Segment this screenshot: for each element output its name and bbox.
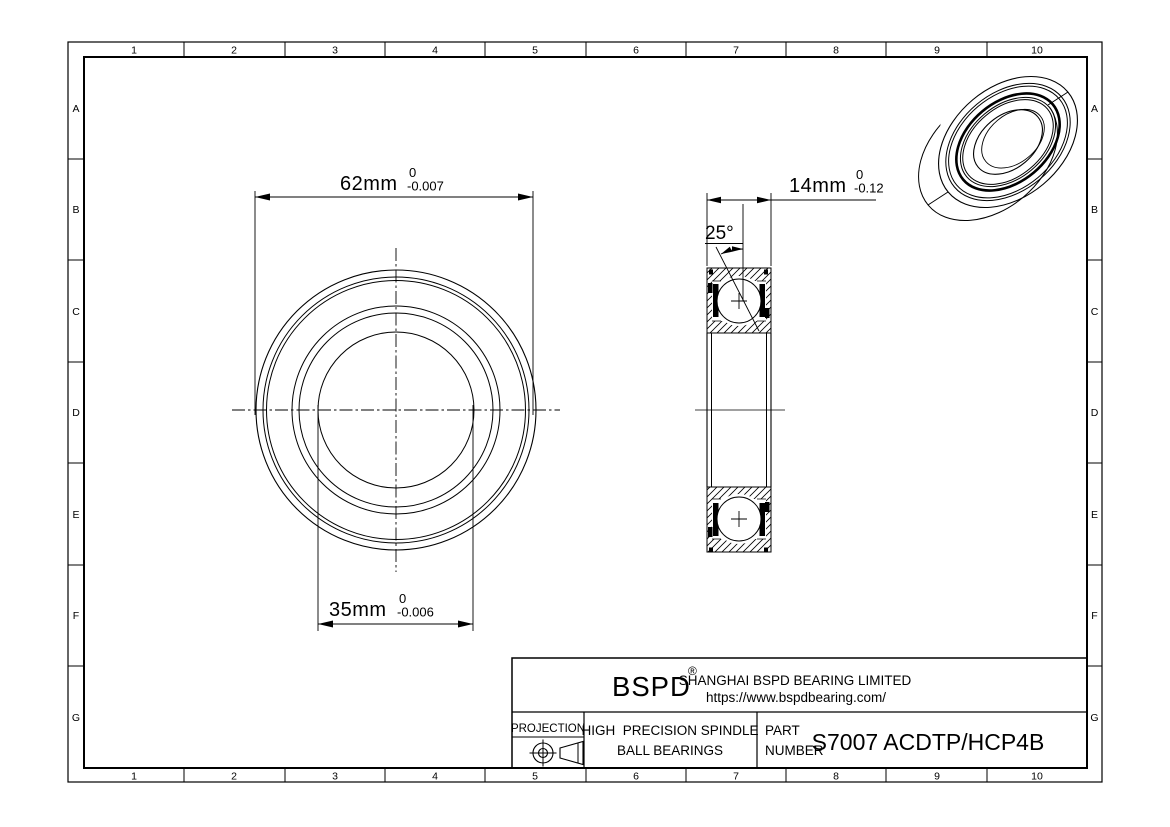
product-line1: HIGH PRECISION SPINDLE — [581, 723, 758, 738]
grid-row-label: A — [72, 103, 79, 115]
bearing-isometric-view — [893, 50, 1103, 248]
bore-dim-tol-lower: -0.006 — [397, 605, 434, 620]
grid-row-labels-right: A B C D E F G — [1090, 103, 1098, 724]
grid-col-label: 10 — [1031, 45, 1043, 57]
section-bottom-block — [707, 487, 771, 553]
company-name: SHANGHAI BSPD BEARING LIMITED — [679, 673, 912, 688]
bearing-front-view: 62mm 0 -0.007 35mm 0 -0.006 — [232, 165, 560, 631]
grid-row-label: C — [72, 306, 80, 318]
width-dim-tol-lower: -0.12 — [854, 181, 884, 196]
drawing-sheet: 1 2 3 4 5 6 7 8 9 10 1 2 3 4 5 6 7 8 9 1… — [0, 0, 1170, 827]
grid-row-label: D — [1091, 407, 1099, 419]
grid-row-label: D — [72, 407, 80, 419]
grid-column-labels-top: 1 2 3 4 5 6 7 8 9 10 — [131, 45, 1043, 57]
iso-seal-ring — [937, 74, 1078, 210]
grid-col-label: 7 — [733, 45, 739, 57]
company-website: https://www.bspdbearing.com/ — [706, 690, 886, 705]
width-dim-value: 14mm — [789, 175, 847, 197]
grid-col-label: 5 — [532, 45, 538, 57]
grid-column-labels-bottom: 1 2 3 4 5 6 7 8 9 10 — [131, 771, 1043, 783]
grid-col-label: 3 — [332, 771, 338, 783]
title-block: BSPD ® SHANGHAI BSPD BEARING LIMITED htt… — [511, 658, 1087, 768]
grid-col-label: 1 — [131, 45, 137, 57]
grid-col-label: 2 — [231, 771, 237, 783]
section-top-block — [707, 268, 771, 333]
outer-dim-tol-lower: -0.007 — [407, 179, 444, 194]
grid-col-label: 6 — [633, 771, 639, 783]
part-number-value: S7007 ACDTP/HCP4B — [812, 729, 1045, 755]
grid-row-label: E — [72, 509, 79, 521]
bearing-section-view: 14mm 0 -0.12 25° — [695, 167, 884, 553]
grid-col-label: 4 — [432, 45, 438, 57]
grid-row-label: E — [1091, 509, 1098, 521]
grid-col-label: 2 — [231, 45, 237, 57]
grid-row-label: B — [1091, 204, 1098, 216]
grid-row-labels-left: A B C D E F G — [72, 103, 80, 724]
grid-col-label: 8 — [833, 45, 839, 57]
grid-col-label: 10 — [1031, 771, 1043, 783]
grid-row-label: C — [1091, 306, 1099, 318]
grid-row-label: G — [1090, 712, 1098, 724]
projection-symbol-icon — [530, 740, 584, 767]
grid-row-label: F — [1091, 610, 1097, 622]
grid-col-label: 1 — [131, 771, 137, 783]
bore-diameter-dimension: 35mm 0 -0.006 — [318, 405, 473, 631]
grid-col-label: 3 — [332, 45, 338, 57]
bore-dim-value: 35mm — [329, 599, 387, 621]
grid-col-label: 4 — [432, 771, 438, 783]
part-label-line1: PART — [765, 723, 800, 738]
grid-row-label: A — [1091, 103, 1098, 115]
grid-col-label: 7 — [733, 771, 739, 783]
projection-label: PROJECTION — [511, 723, 585, 735]
product-line2: BALL BEARINGS — [617, 743, 723, 758]
outer-dim-value: 62mm — [340, 173, 398, 195]
grid-col-label: 8 — [833, 771, 839, 783]
grid-row-label: G — [72, 712, 80, 724]
contact-angle-value: 25° — [705, 223, 734, 244]
grid-col-label: 6 — [633, 45, 639, 57]
grid-col-label: 5 — [532, 771, 538, 783]
engineering-drawing-canvas: 1 2 3 4 5 6 7 8 9 10 1 2 3 4 5 6 7 8 9 1… — [0, 0, 1170, 827]
grid-row-label: F — [73, 610, 79, 622]
grid-col-label: 9 — [934, 45, 940, 57]
grid-row-label: B — [72, 204, 79, 216]
grid-col-label: 9 — [934, 771, 940, 783]
